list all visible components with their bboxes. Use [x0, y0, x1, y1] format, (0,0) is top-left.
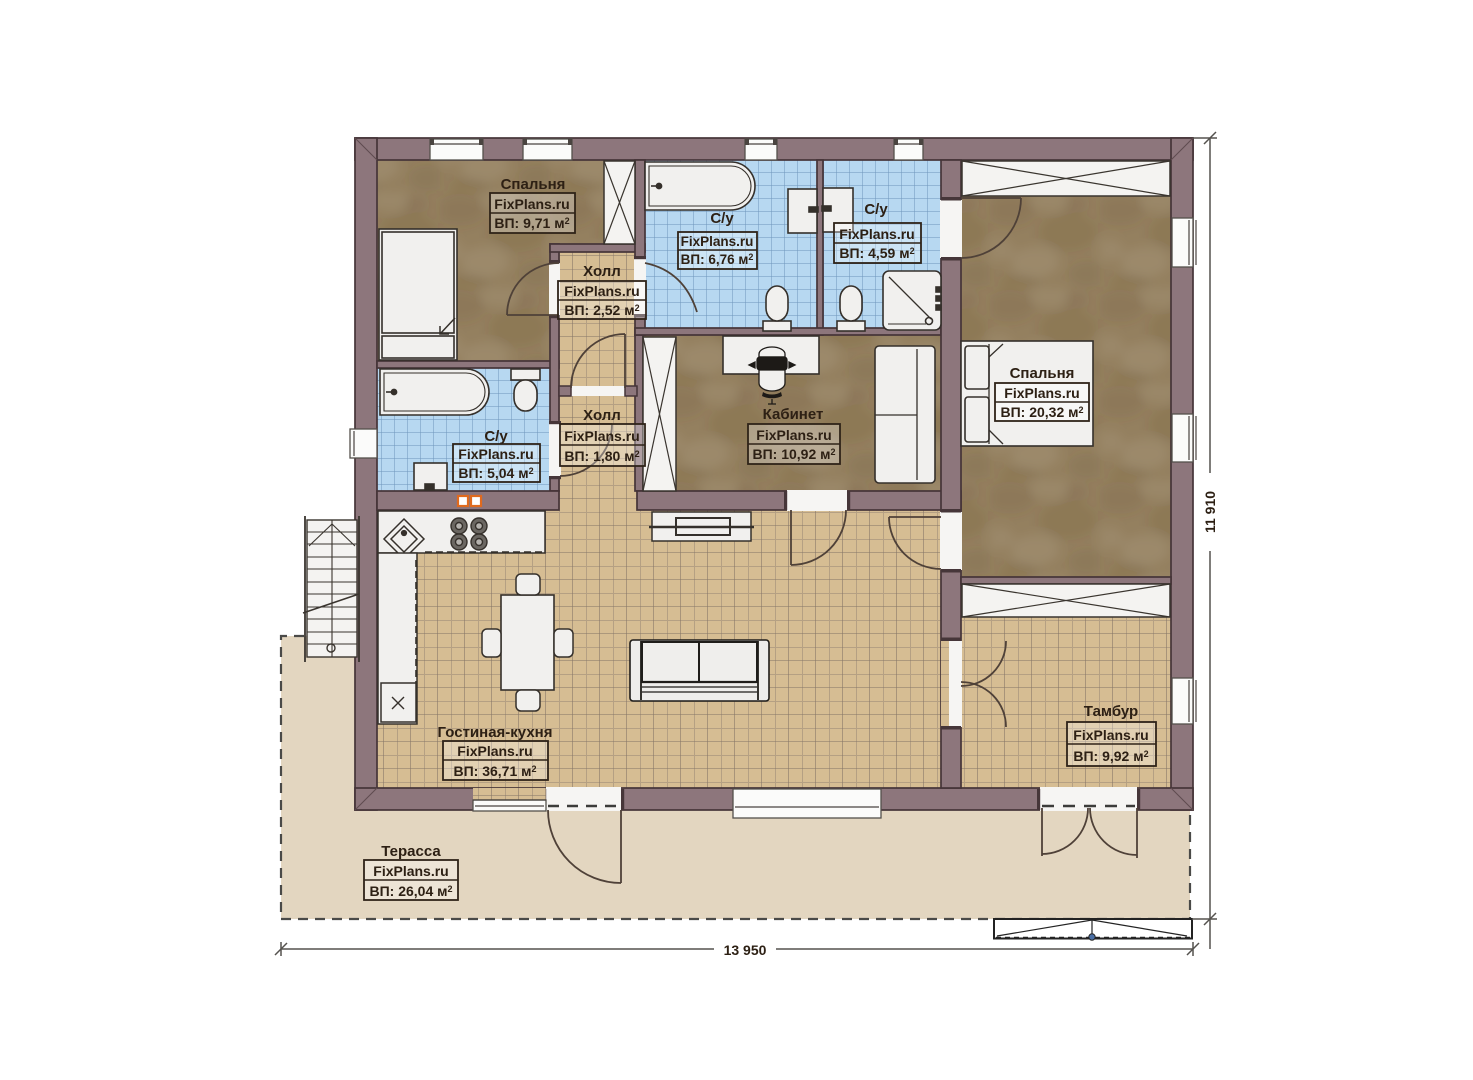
svg-text:Спальня: Спальня — [501, 176, 566, 193]
svg-text:Холл: Холл — [583, 263, 621, 280]
svg-text:FixPlans.ru: FixPlans.ru — [681, 234, 754, 249]
svg-text:С/у: С/у — [710, 210, 734, 227]
svg-text:ВП: 4,59 м2: ВП: 4,59 м2 — [839, 245, 914, 261]
svg-text:ВП: 1,80 м2: ВП: 1,80 м2 — [564, 448, 639, 464]
svg-text:Холл: Холл — [583, 407, 621, 424]
svg-text:FixPlans.ru: FixPlans.ru — [839, 226, 914, 242]
svg-text:FixPlans.ru: FixPlans.ru — [494, 196, 569, 212]
svg-text:FixPlans.ru: FixPlans.ru — [564, 283, 639, 299]
svg-text:Тамбур: Тамбур — [1084, 703, 1138, 720]
svg-text:11 910: 11 910 — [1202, 491, 1218, 533]
svg-text:Гостиная-кухня: Гостиная-кухня — [438, 724, 553, 741]
svg-text:FixPlans.ru: FixPlans.ru — [564, 428, 639, 444]
svg-text:ВП: 5,04 м2: ВП: 5,04 м2 — [458, 465, 533, 481]
svg-text:ВП: 36,71 м2: ВП: 36,71 м2 — [453, 763, 536, 779]
svg-text:ВП: 9,71 м2: ВП: 9,71 м2 — [494, 215, 569, 231]
svg-text:13 950: 13 950 — [724, 942, 767, 958]
svg-text:С/у: С/у — [864, 201, 888, 218]
svg-text:С/у: С/у — [484, 428, 508, 445]
svg-text:FixPlans.ru: FixPlans.ru — [458, 446, 533, 462]
svg-text:ВП: 20,32 м2: ВП: 20,32 м2 — [1000, 404, 1083, 420]
svg-text:FixPlans.ru: FixPlans.ru — [1004, 385, 1079, 401]
svg-text:Спальня: Спальня — [1010, 365, 1075, 382]
svg-text:FixPlans.ru: FixPlans.ru — [1073, 727, 1148, 743]
svg-text:Терасса: Терасса — [381, 843, 441, 860]
svg-text:ВП: 2,52 м2: ВП: 2,52 м2 — [564, 302, 639, 318]
svg-text:ВП: 9,92 м2: ВП: 9,92 м2 — [1073, 748, 1148, 764]
svg-text:ВП: 6,76 м2: ВП: 6,76 м2 — [681, 252, 754, 267]
svg-text:FixPlans.ru: FixPlans.ru — [756, 427, 831, 443]
svg-text:ВП: 10,92 м2: ВП: 10,92 м2 — [752, 446, 835, 462]
svg-text:ВП: 26,04 м2: ВП: 26,04 м2 — [369, 883, 452, 899]
svg-text:FixPlans.ru: FixPlans.ru — [373, 863, 448, 879]
svg-text:FixPlans.ru: FixPlans.ru — [457, 743, 532, 759]
svg-text:Кабинет: Кабинет — [763, 406, 824, 423]
